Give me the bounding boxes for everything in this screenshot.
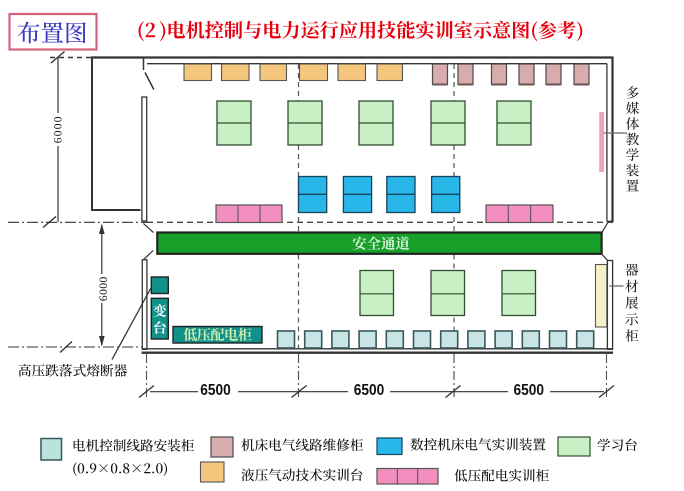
svg-text:6500: 6500 xyxy=(354,382,385,399)
svg-text:6000: 6000 xyxy=(51,115,65,143)
svg-text:6500: 6500 xyxy=(200,382,231,399)
svg-text:6500: 6500 xyxy=(513,382,544,399)
svg-text:6000: 6000 xyxy=(96,276,110,301)
